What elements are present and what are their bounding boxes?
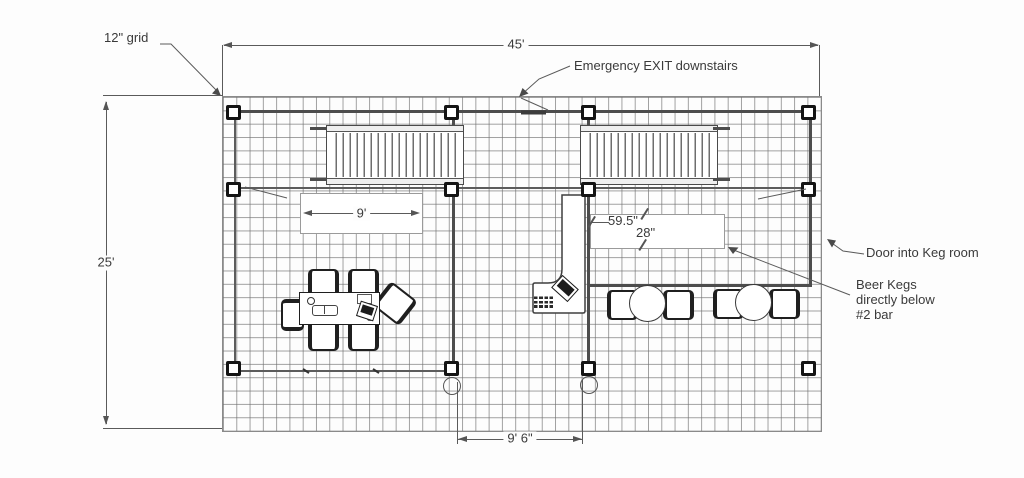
staircase-right xyxy=(580,125,718,185)
wall-north xyxy=(233,110,813,113)
beer-kegs-line-1: Beer Kegs xyxy=(856,278,935,293)
stair-stringer xyxy=(581,178,717,184)
beer-kegs-label: Beer Kegs directly below #2 bar xyxy=(856,278,935,323)
stair-run-dimension: 9' xyxy=(353,206,371,221)
column xyxy=(444,105,459,120)
emergency-exit-label: Emergency EXIT downstairs xyxy=(574,59,738,74)
column xyxy=(581,361,596,376)
stair-stringer xyxy=(327,178,463,184)
arrow-up-icon xyxy=(103,101,109,110)
footing-circle xyxy=(443,377,461,395)
stair-stringer xyxy=(327,126,463,132)
column xyxy=(581,182,596,197)
arrow-right-icon xyxy=(810,42,819,48)
extension-line xyxy=(582,380,583,444)
arrow-left-icon xyxy=(223,42,232,48)
wall-row2 xyxy=(233,187,812,189)
beer-kegs-line-3: #2 bar xyxy=(856,308,935,323)
wall-west xyxy=(234,112,236,372)
stair-treads xyxy=(330,133,460,177)
column xyxy=(581,105,596,120)
bar-depth-dimension: 28" xyxy=(636,226,655,241)
arrow-right-icon xyxy=(573,436,582,442)
papers-divider xyxy=(324,305,325,314)
column xyxy=(801,361,816,376)
door-span-dimension: 9' 6" xyxy=(503,432,536,447)
dimension-line xyxy=(592,222,609,223)
round-table xyxy=(735,284,772,321)
column xyxy=(444,182,459,197)
extension-line xyxy=(103,95,222,96)
keg-room-door-label: Door into Keg room xyxy=(866,246,979,261)
chair xyxy=(769,289,800,319)
cup xyxy=(307,297,315,305)
column xyxy=(444,361,459,376)
round-table xyxy=(629,285,666,322)
column xyxy=(226,105,241,120)
laptop-screen xyxy=(360,304,374,316)
stair-right-handrail-top xyxy=(713,127,730,130)
column xyxy=(226,182,241,197)
beer-kegs-line-2: directly below xyxy=(856,293,935,308)
stair-left-handrail-top xyxy=(310,127,327,130)
column xyxy=(226,361,241,376)
stair-left-handrail-bottom xyxy=(310,178,327,181)
extension-line xyxy=(222,45,223,96)
chair xyxy=(663,290,694,320)
conference-table xyxy=(299,292,380,325)
wall-east xyxy=(809,112,812,287)
stair-dimension-box: 9' xyxy=(300,193,423,234)
arrow-right-icon xyxy=(411,210,420,216)
arrow-down-icon xyxy=(103,416,109,425)
overall-depth-dimension: 25' xyxy=(94,256,119,271)
arrow-left-icon xyxy=(303,210,312,216)
stair-stringer xyxy=(581,126,717,132)
stair-treads xyxy=(584,133,714,177)
staircase-left xyxy=(326,125,464,185)
floor-plan: 9' 59.5" 28" xyxy=(0,0,1024,478)
column xyxy=(801,182,816,197)
keyboard xyxy=(534,295,555,308)
extension-line xyxy=(819,45,820,96)
extension-line xyxy=(103,428,222,429)
grid-note-label: 12" grid xyxy=(104,31,148,46)
overall-width-dimension: 45' xyxy=(504,38,529,53)
bar2-front-wall xyxy=(589,284,811,287)
railing-south xyxy=(233,370,454,372)
wall-mid-left xyxy=(452,190,455,370)
laptop xyxy=(356,301,378,322)
floor-grid xyxy=(222,96,822,432)
arrow-left-icon xyxy=(458,436,467,442)
bar-length-dimension: 59.5" xyxy=(608,214,638,229)
stair-right-handrail-bottom xyxy=(713,178,730,181)
column xyxy=(801,105,816,120)
